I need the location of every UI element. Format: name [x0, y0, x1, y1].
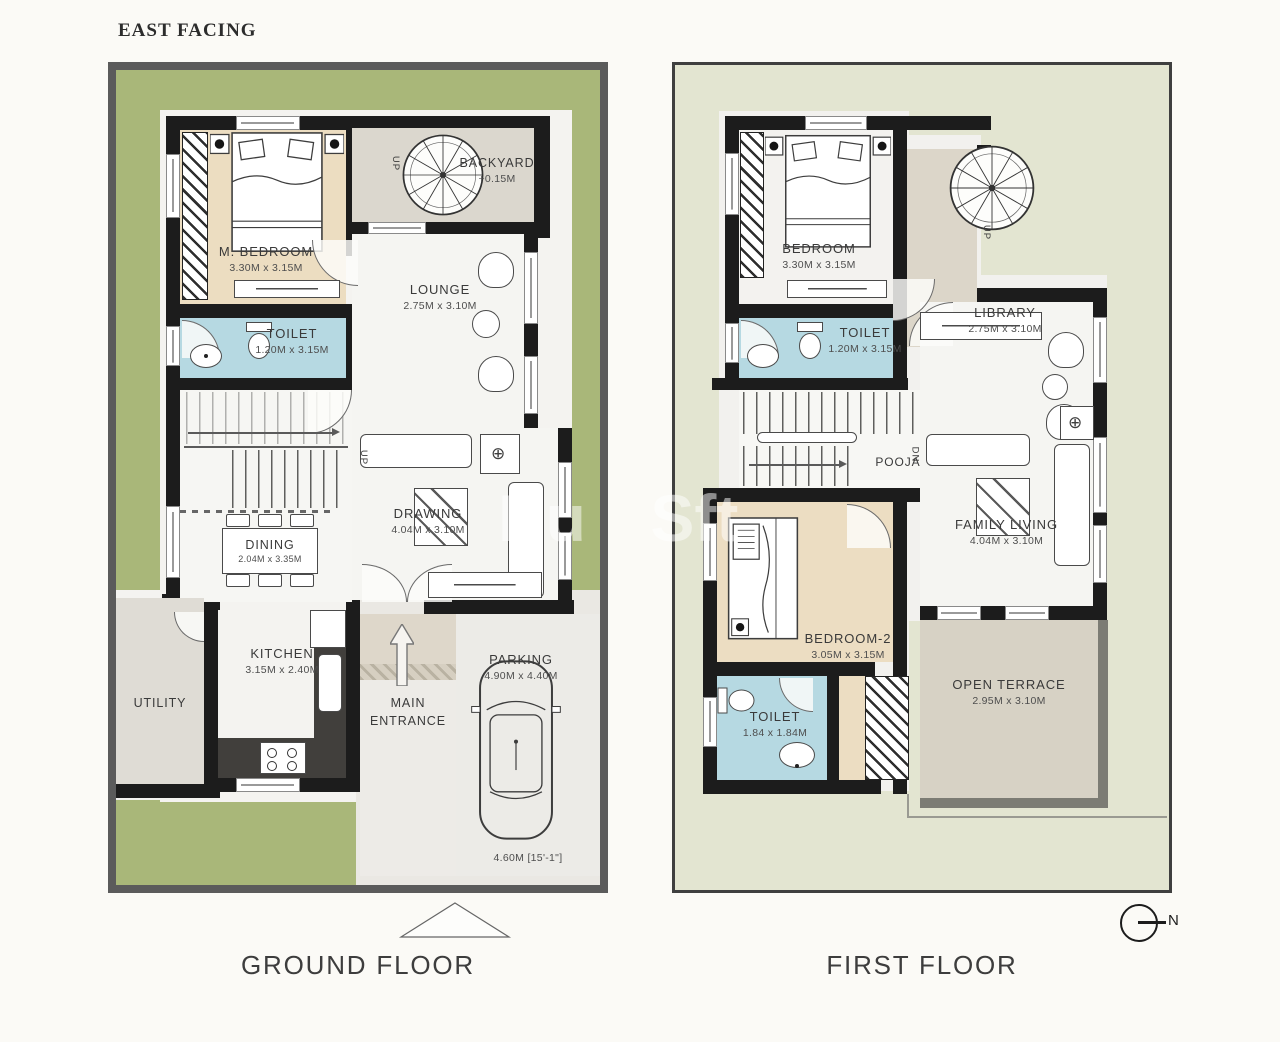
stair-arrow-line [749, 464, 841, 466]
parking-width-box: 4.60M [15'-1"] [456, 852, 600, 864]
dining-table-icon: DINING 2.04M x 3.35M [222, 528, 318, 574]
kitchen-label: KITCHEN [216, 646, 348, 661]
m-bedroom-dims: 3.30M x 3.15M [186, 262, 346, 274]
library-label-box: LIBRARY 2.75M x 3.10M [925, 305, 1085, 335]
north-label: N [1168, 912, 1179, 929]
wardrobe-icon [182, 132, 208, 300]
sofa-icon [1054, 444, 1090, 566]
spiral-staircase-icon [947, 143, 1037, 233]
window [805, 116, 867, 130]
wall [725, 304, 893, 318]
kitchen-dims: 3.15M x 2.40M [216, 664, 348, 676]
bedroom2-dims: 3.05M x 3.15M [773, 649, 923, 661]
chair-icon [226, 574, 250, 587]
stove-icon [260, 742, 306, 774]
library-label: LIBRARY [925, 305, 1085, 320]
terrace-door-opening [937, 606, 981, 620]
chair-icon [258, 574, 282, 587]
drawing-dims: 4.04M x 3.10M [338, 524, 518, 536]
window [1093, 437, 1107, 513]
toilet-label: TOILET [797, 325, 933, 340]
parking-width-note: 4.60M [15'-1"] [456, 852, 600, 864]
double-bed-icon [765, 132, 891, 258]
dining-dims: 2.04M x 3.35M [238, 554, 301, 564]
burner [287, 761, 297, 771]
round-table-icon [472, 310, 500, 338]
window [703, 697, 717, 747]
drain-dot [795, 764, 799, 768]
sofa-icon [360, 434, 472, 468]
wall [703, 780, 881, 794]
backyard-level: +0.15M [442, 173, 552, 185]
window [166, 326, 180, 366]
stair-arrow-head [332, 428, 340, 436]
stair-lower-flight [232, 450, 348, 508]
window [236, 778, 300, 792]
plan-outline [907, 816, 1167, 818]
bedroom-label-box: BEDROOM 3.30M x 3.15M [741, 241, 897, 271]
stair-lower-flight [743, 446, 853, 486]
open-terrace-label-box: OPEN TERRACE 2.95M x 3.10M [920, 677, 1098, 707]
burner [267, 761, 277, 771]
pooja-label: POOJA [864, 455, 932, 469]
stairs-up-label: UP [981, 225, 992, 240]
backyard-label: BACKYARD [442, 156, 552, 170]
burner [287, 748, 297, 758]
fan-table-icon: ⊕ [1060, 406, 1094, 440]
bedroom-label: BEDROOM [741, 241, 897, 256]
toilet2-dims: 1.84 x 1.84M [717, 727, 833, 739]
wall [166, 378, 358, 390]
dresser-icon [787, 280, 887, 298]
window [1093, 525, 1107, 583]
wall [116, 784, 220, 798]
lounge-floor [352, 234, 524, 428]
parking-dims: 4.90M x 4.40M [456, 670, 586, 682]
lounge-label: LOUNGE [356, 282, 524, 297]
page-title: EAST FACING [118, 20, 257, 42]
toilet-label-box: TOILET 1.20M x 3.15M [234, 326, 350, 356]
utility-label: UTILITY [116, 696, 204, 710]
wall [346, 600, 360, 792]
family-living-label-box: FAMILY LIVING 4.04M x 3.10M [920, 517, 1093, 547]
pooja-label-box: POOJA [864, 455, 932, 469]
window [166, 154, 180, 218]
window [524, 252, 538, 324]
console-cabinet-icon [428, 572, 542, 598]
entrance-corridor-floor: MAIN ENTRANCE [360, 614, 456, 876]
open-terrace-dims: 2.95M x 3.10M [920, 695, 1098, 707]
entrance-label-box: MAIN ENTRANCE [360, 694, 456, 730]
window [1093, 317, 1107, 383]
bed-icon [721, 512, 805, 650]
bedroom2-label: BEDROOM-2 [773, 631, 923, 646]
terrace-door-opening [1005, 606, 1049, 620]
stair-divider [184, 446, 348, 448]
window [725, 153, 739, 215]
round-table-icon [1042, 374, 1068, 400]
stair-arrow-line [188, 432, 334, 434]
ground-floor-plan: UP DI [108, 62, 608, 893]
master-bedroom-floor [180, 130, 346, 304]
family-living-label: FAMILY LIVING [920, 517, 1093, 532]
parking-floor: PARKING 4.90M x 4.40M 4.60M [15'-1"] [456, 614, 600, 876]
bedroom2-label-box: BEDROOM-2 3.05M x 3.15M [773, 631, 923, 661]
stair-upper-flight [743, 392, 925, 434]
kitchen-label-box: KITCHEN 3.15M x 2.40M [216, 646, 348, 676]
fan-table-icon: ⊕ [480, 434, 520, 474]
armchair-icon [478, 356, 514, 392]
dresser-icon [234, 280, 340, 298]
plan-outline [907, 794, 909, 818]
fridge-icon [310, 610, 346, 648]
window [236, 116, 300, 130]
fan-symbol: ⊕ [1068, 413, 1082, 433]
window [524, 356, 538, 414]
bedroom-dims: 3.30M x 3.15M [741, 259, 897, 271]
first-floor-title: FIRST FLOOR [720, 950, 1124, 981]
open-terrace-floor [920, 620, 1108, 808]
chair-icon [290, 514, 314, 527]
ground-floor-title: GROUND FLOOR [156, 950, 560, 981]
library-dims: 2.75M x 3.10M [925, 323, 1085, 335]
burner [267, 748, 277, 758]
dining-label: DINING [245, 538, 294, 552]
toilet2-label-box: TOILET 1.84 x 1.84M [717, 709, 833, 739]
toilet-dims: 1.20M x 3.15M [797, 343, 933, 355]
sofa-icon [926, 434, 1030, 466]
window [703, 523, 717, 581]
toilet-label-box: TOILET 1.20M x 3.15M [797, 325, 933, 355]
stair-dashed-line [180, 510, 332, 513]
lounge-dims: 2.75M x 3.10M [356, 300, 524, 312]
drawing-label-box: DRAWING 4.04M x 3.10M [338, 506, 518, 536]
m-bedroom-label-box: M. BEDROOM 3.30M x 3.15M [186, 244, 346, 274]
drawing-label: DRAWING [338, 506, 518, 521]
wardrobe-icon [865, 676, 909, 780]
north-compass-needle [1138, 921, 1166, 924]
lounge-label-box: LOUNGE 2.75M x 3.10M [356, 282, 524, 312]
wall [703, 488, 932, 502]
m-bedroom-label: M. BEDROOM [186, 244, 346, 259]
stair-arrow-head [839, 460, 847, 468]
window [166, 506, 180, 578]
family-living-dims: 4.04M x 3.10M [920, 535, 1093, 547]
armchair-icon [1048, 332, 1084, 368]
washbasin-icon [747, 344, 779, 368]
stair-handrail [757, 432, 857, 443]
window [558, 462, 572, 518]
toilet-dims: 1.20M x 3.15M [234, 344, 350, 356]
chair-icon [258, 514, 282, 527]
entry-arrow-icon [390, 624, 414, 686]
wall [703, 662, 875, 676]
toilet2-label: TOILET [717, 709, 833, 724]
entrance-gable-icon [398, 900, 512, 940]
stairs-up-label: UP [358, 450, 369, 465]
stairs-up-label: UP [390, 156, 401, 171]
first-floor-plan: UP [672, 62, 1172, 893]
entrance-label: MAIN ENTRANCE [360, 694, 456, 730]
parking-label: PARKING [456, 652, 586, 667]
kitchen-floor [218, 610, 346, 778]
wall [424, 600, 574, 614]
window [368, 222, 426, 234]
drain-dot [204, 354, 208, 358]
wall [178, 304, 348, 318]
bedroom-floor [739, 130, 893, 304]
chair-icon [290, 574, 314, 587]
toilet-label: TOILET [234, 326, 350, 341]
wall [558, 428, 572, 628]
fan-symbol: ⊕ [491, 444, 505, 464]
window [725, 323, 739, 363]
window [558, 532, 572, 580]
open-terrace-label: OPEN TERRACE [920, 677, 1098, 692]
backyard-label-box: BACKYARD +0.15M [442, 156, 552, 185]
parking-label-box: PARKING 4.90M x 4.40M [456, 652, 586, 682]
wall [712, 378, 908, 390]
utility-label-box: UTILITY [116, 696, 204, 710]
chair-icon [226, 514, 250, 527]
wall [204, 594, 218, 792]
